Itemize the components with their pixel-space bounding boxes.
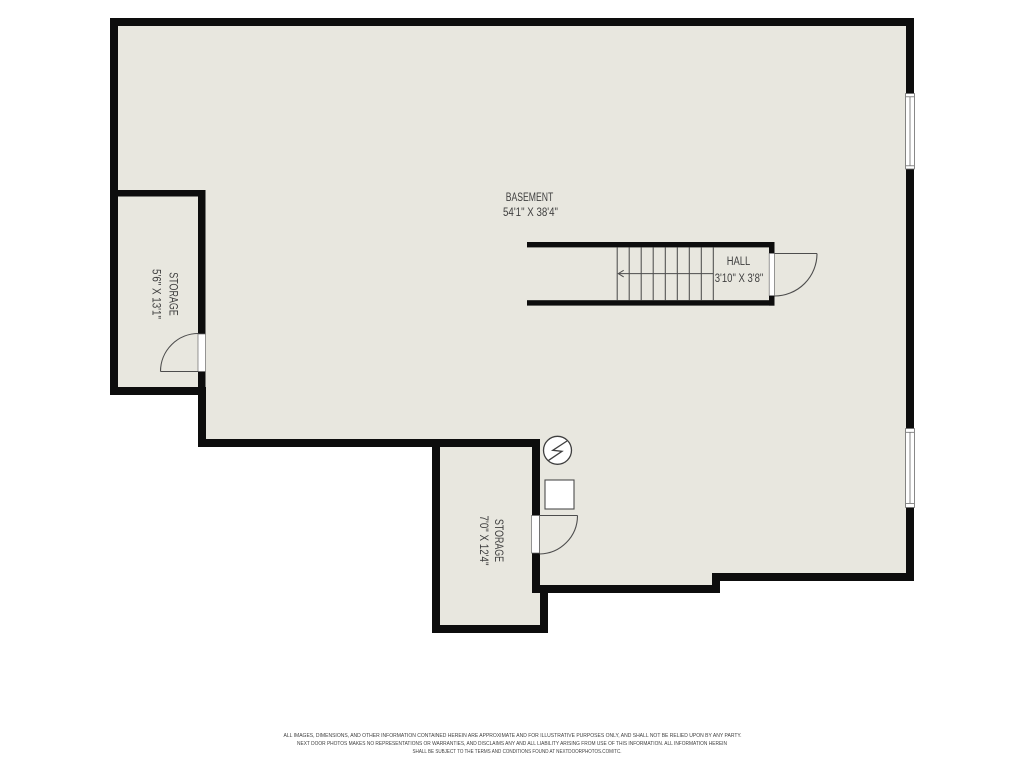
svg-text:STORAGE: STORAGE	[167, 272, 179, 316]
svg-text:BASEMENT: BASEMENT	[506, 192, 554, 204]
svg-text:ALL IMAGES, DIMENSIONS, AND OT: ALL IMAGES, DIMENSIONS, AND OTHER INFORM…	[284, 733, 742, 739]
svg-text:7'0" X 12'4": 7'0" X 12'4"	[477, 516, 489, 566]
svg-text:NEXT DOOR PHOTOS MAKES NO REPR: NEXT DOOR PHOTOS MAKES NO REPRESENTATION…	[297, 741, 727, 747]
svg-text:54'1" X 38'4": 54'1" X 38'4"	[503, 207, 558, 219]
svg-text:SHALL BE SUBJECT TO THE TERMS: SHALL BE SUBJECT TO THE TERMS AND CONDIT…	[413, 749, 622, 755]
svg-text:STORAGE: STORAGE	[492, 519, 504, 562]
svg-text:5'6" X 13'1": 5'6" X 13'1"	[150, 269, 162, 319]
svg-text:3'10" X 3'8": 3'10" X 3'8"	[715, 273, 764, 285]
svg-text:HALL: HALL	[727, 256, 751, 268]
